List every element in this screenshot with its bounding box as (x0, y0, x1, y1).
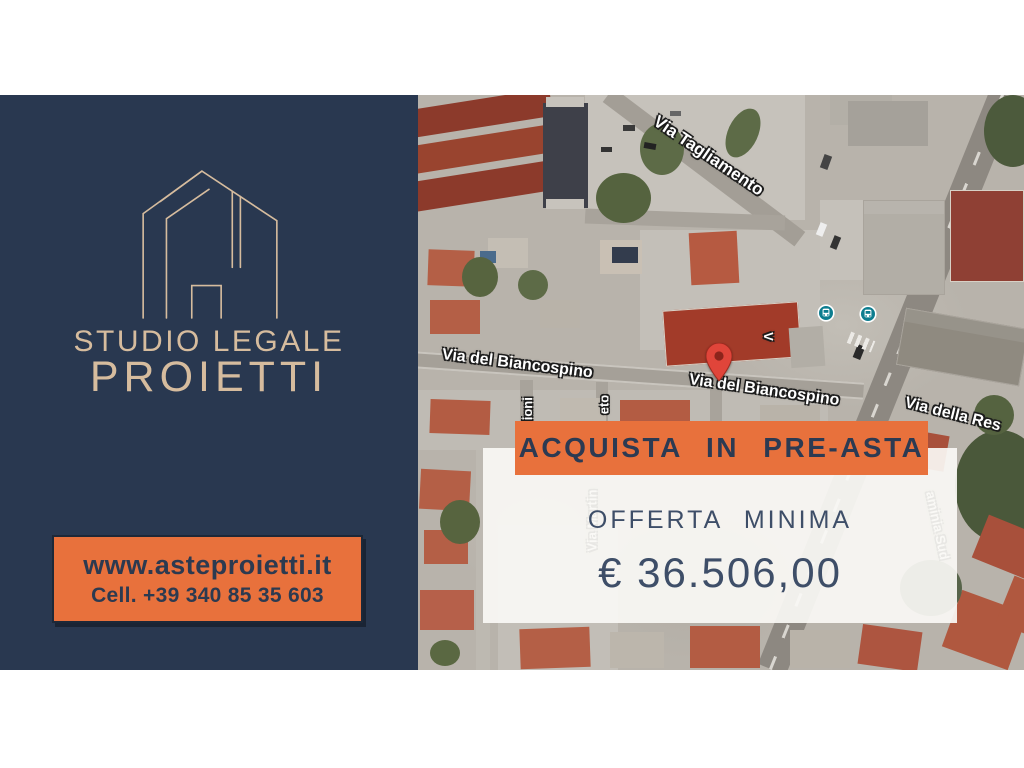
studio-title-line2: PROIETTI (0, 353, 418, 402)
map-feature (546, 199, 584, 209)
offer-amount: € 36.506,00 (598, 549, 842, 597)
map-feature (462, 257, 498, 297)
map-feature (689, 231, 740, 285)
map-feature (420, 590, 474, 630)
auction-flyer: STUDIO LEGALE PROIETTI www.asteproietti.… (0, 0, 1024, 768)
map-feature (896, 308, 1024, 387)
map-feature (848, 101, 928, 146)
pre-asta-banner-text: ACQUISTA IN PRE-ASTA (519, 432, 925, 464)
map-feature (950, 190, 1024, 282)
street-label-lioni: lioni (520, 397, 535, 424)
map-feature (519, 627, 590, 669)
phone-text: Cell. +39 340 85 35 603 (91, 584, 324, 608)
contact-box: www.asteproietti.it Cell. +39 340 85 35 … (52, 535, 363, 623)
map-feature (789, 326, 826, 368)
map-feature (610, 632, 664, 668)
map-feature (430, 300, 480, 334)
website-text: www.asteproietti.it (83, 550, 332, 581)
satellite-map: Via Tagliamento Via del Biancospino Via … (418, 95, 1024, 670)
map-pin-icon (706, 343, 732, 381)
map-feature (623, 125, 635, 131)
map-feature (540, 300, 580, 328)
pre-asta-banner: ACQUISTA IN PRE-ASTA (515, 421, 928, 475)
map-feature (820, 154, 832, 170)
map-feature (790, 630, 850, 668)
bus-stop-icon (859, 305, 877, 323)
map-feature (546, 97, 584, 107)
map-feature (430, 640, 460, 666)
map-feature (662, 301, 802, 366)
map-feature (601, 147, 612, 152)
map-feature (690, 626, 760, 668)
house-logo-icon (136, 163, 284, 320)
map-feature (670, 111, 681, 116)
street-label-v: V (761, 332, 776, 341)
offer-label: OFFERTA MINIMA (588, 506, 852, 535)
street-label-via-del-biancospino-west: Via del Biancospino (441, 346, 594, 382)
street-label-eto: eto (596, 395, 611, 415)
map-feature (612, 247, 638, 263)
map-feature (596, 173, 651, 223)
map-feature (858, 624, 923, 670)
map-feature (440, 500, 480, 544)
map-feature (518, 270, 548, 300)
brand-panel: STUDIO LEGALE PROIETTI www.asteproietti.… (0, 95, 418, 670)
map-feature (863, 200, 945, 295)
map-feature (543, 103, 588, 208)
bus-stop-icon (817, 304, 835, 322)
map-feature (429, 399, 490, 435)
